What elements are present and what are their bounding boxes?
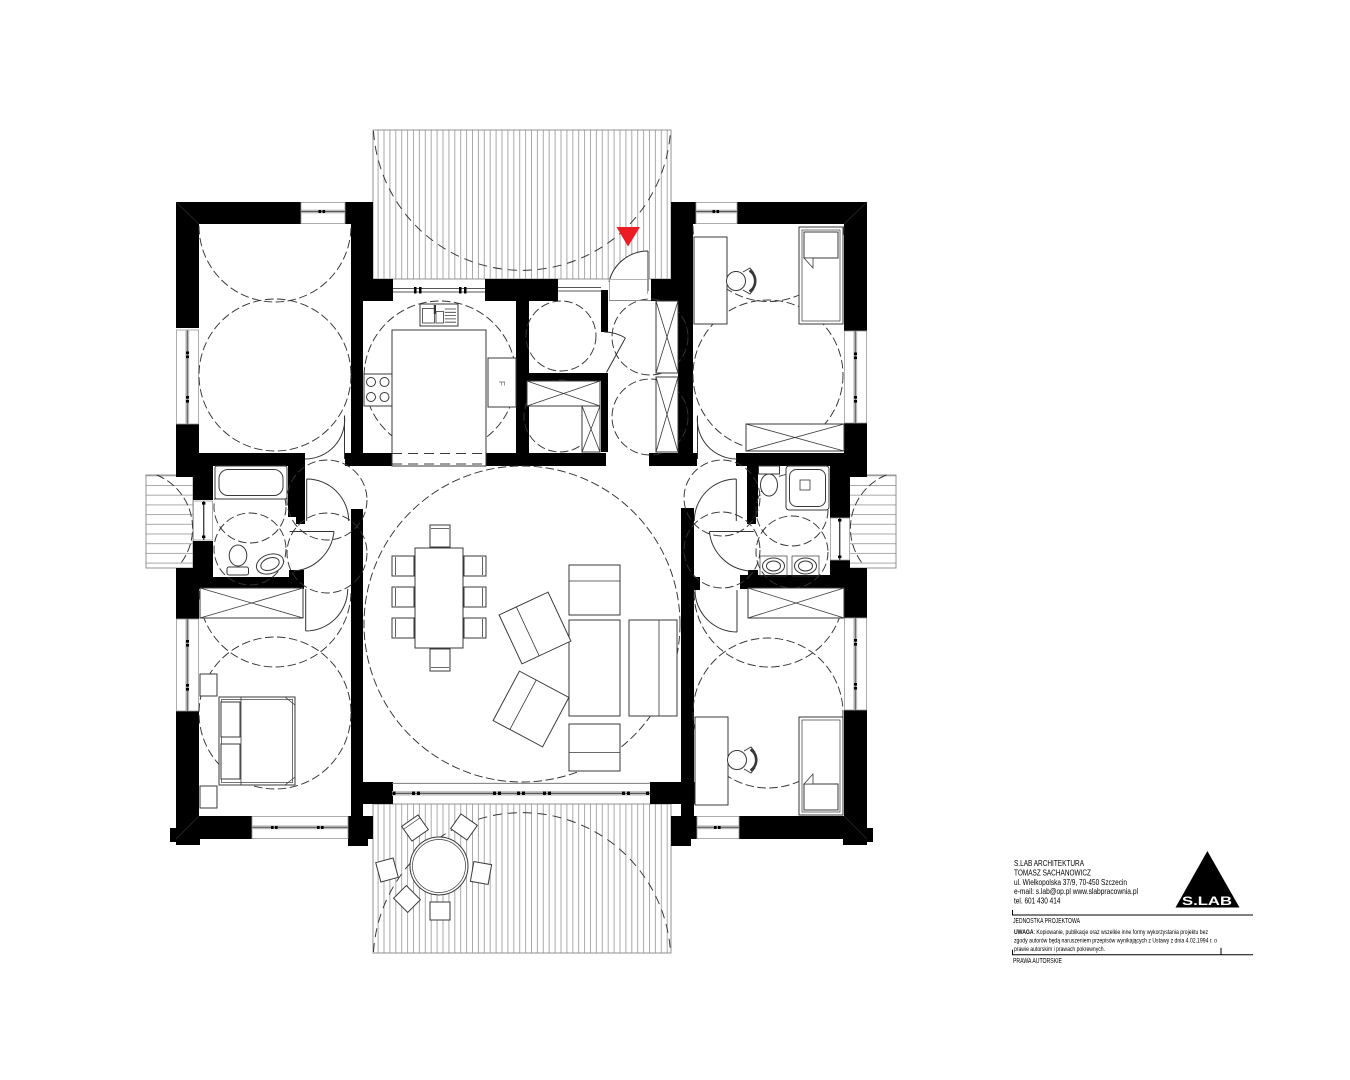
svg-text:S.LAB: S.LAB [1182,896,1232,908]
svg-text:PRAWA AUTORSKIE: PRAWA AUTORSKIE [1013,958,1062,965]
svg-text:F: F [497,381,506,386]
svg-text:prawie autorskim i prawach pok: prawie autorskim i prawach pokrewnych. [1014,946,1105,953]
svg-text:JEDNOSTKA PROJEKTOWA: JEDNOSTKA PROJEKTOWA [1013,918,1080,925]
svg-text:zgody autorów będą naruszeniem: zgody autorów będą naruszeniem przepisów… [1014,938,1217,945]
svg-text:UWAGA: Kopiowanie, publikacje: UWAGA: Kopiowanie, publikacje oraz wszel… [1014,929,1208,936]
svg-text:tel. 601 430 414: tel. 601 430 414 [1014,896,1061,906]
